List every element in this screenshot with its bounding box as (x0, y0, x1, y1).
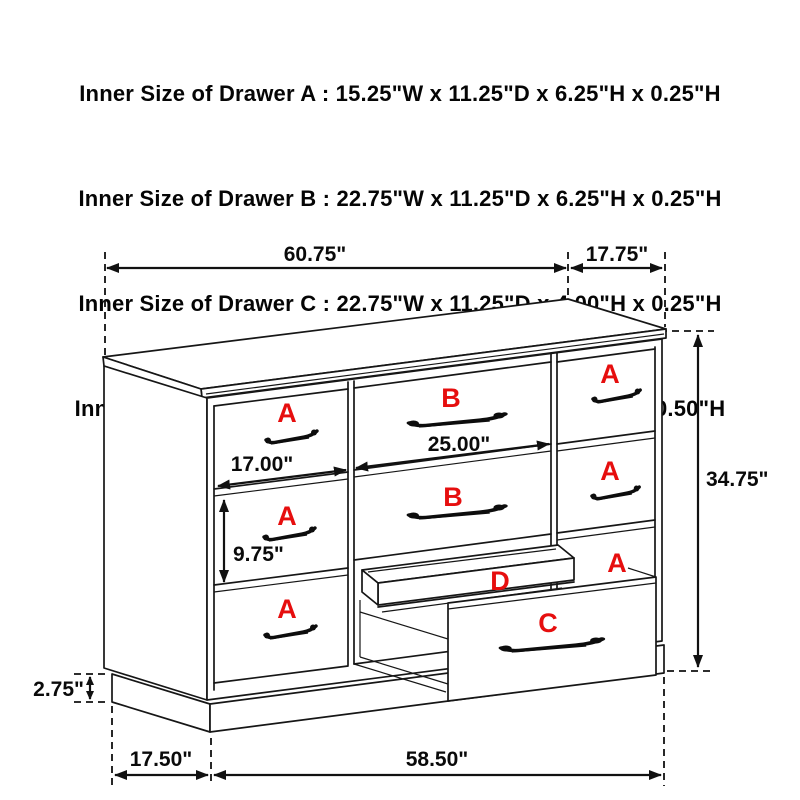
dim-left-drawer-width-label: 17.00" (231, 453, 294, 476)
drawer-label-a-right-top: A (600, 359, 620, 389)
dim-overall-height-label: 34.75" (706, 468, 769, 491)
drawer-label-a-left-top: A (277, 398, 297, 428)
drawer-label-d: D (490, 566, 510, 596)
dim-left-drawer-height-label: 9.75" (233, 543, 284, 566)
dim-base-width-label: 58.50" (406, 748, 469, 771)
dim-top-depth: 17.75" (571, 243, 662, 268)
dresser-side-panel (104, 366, 207, 700)
drawer-label-c: C (538, 608, 558, 638)
dim-top-width: 60.75" (107, 243, 566, 268)
dim-overall-height: 34.75" (698, 335, 769, 667)
dim-base-depth-label: 17.50" (130, 748, 193, 771)
dim-center-drawer-width-label: 25.00" (428, 433, 491, 456)
dresser-dimension-diagram: A A A B B A A A D C 60.75" 17.75" 34.75" (0, 0, 800, 800)
dim-top-depth-label: 17.75" (586, 243, 649, 266)
dim-base-height-label: 2.75" (33, 678, 84, 701)
dim-base-width: 58.50" (214, 748, 661, 775)
dim-base-depth: 17.50" (115, 748, 208, 775)
drawer-label-a-right-bottom: A (607, 548, 627, 578)
drawer-label-b-bottom: B (443, 482, 463, 512)
drawer-label-a-right-middle: A (600, 456, 620, 486)
dimension-diagram-page: Inner Size of Drawer A : 15.25"W x 11.25… (0, 0, 800, 800)
drawer-label-a-left-bottom: A (277, 594, 297, 624)
drawer-label-a-left-middle: A (277, 501, 297, 531)
dim-top-width-label: 60.75" (284, 243, 347, 266)
dim-base-height: 2.75" (33, 677, 90, 701)
drawer-label-b-top: B (441, 383, 461, 413)
